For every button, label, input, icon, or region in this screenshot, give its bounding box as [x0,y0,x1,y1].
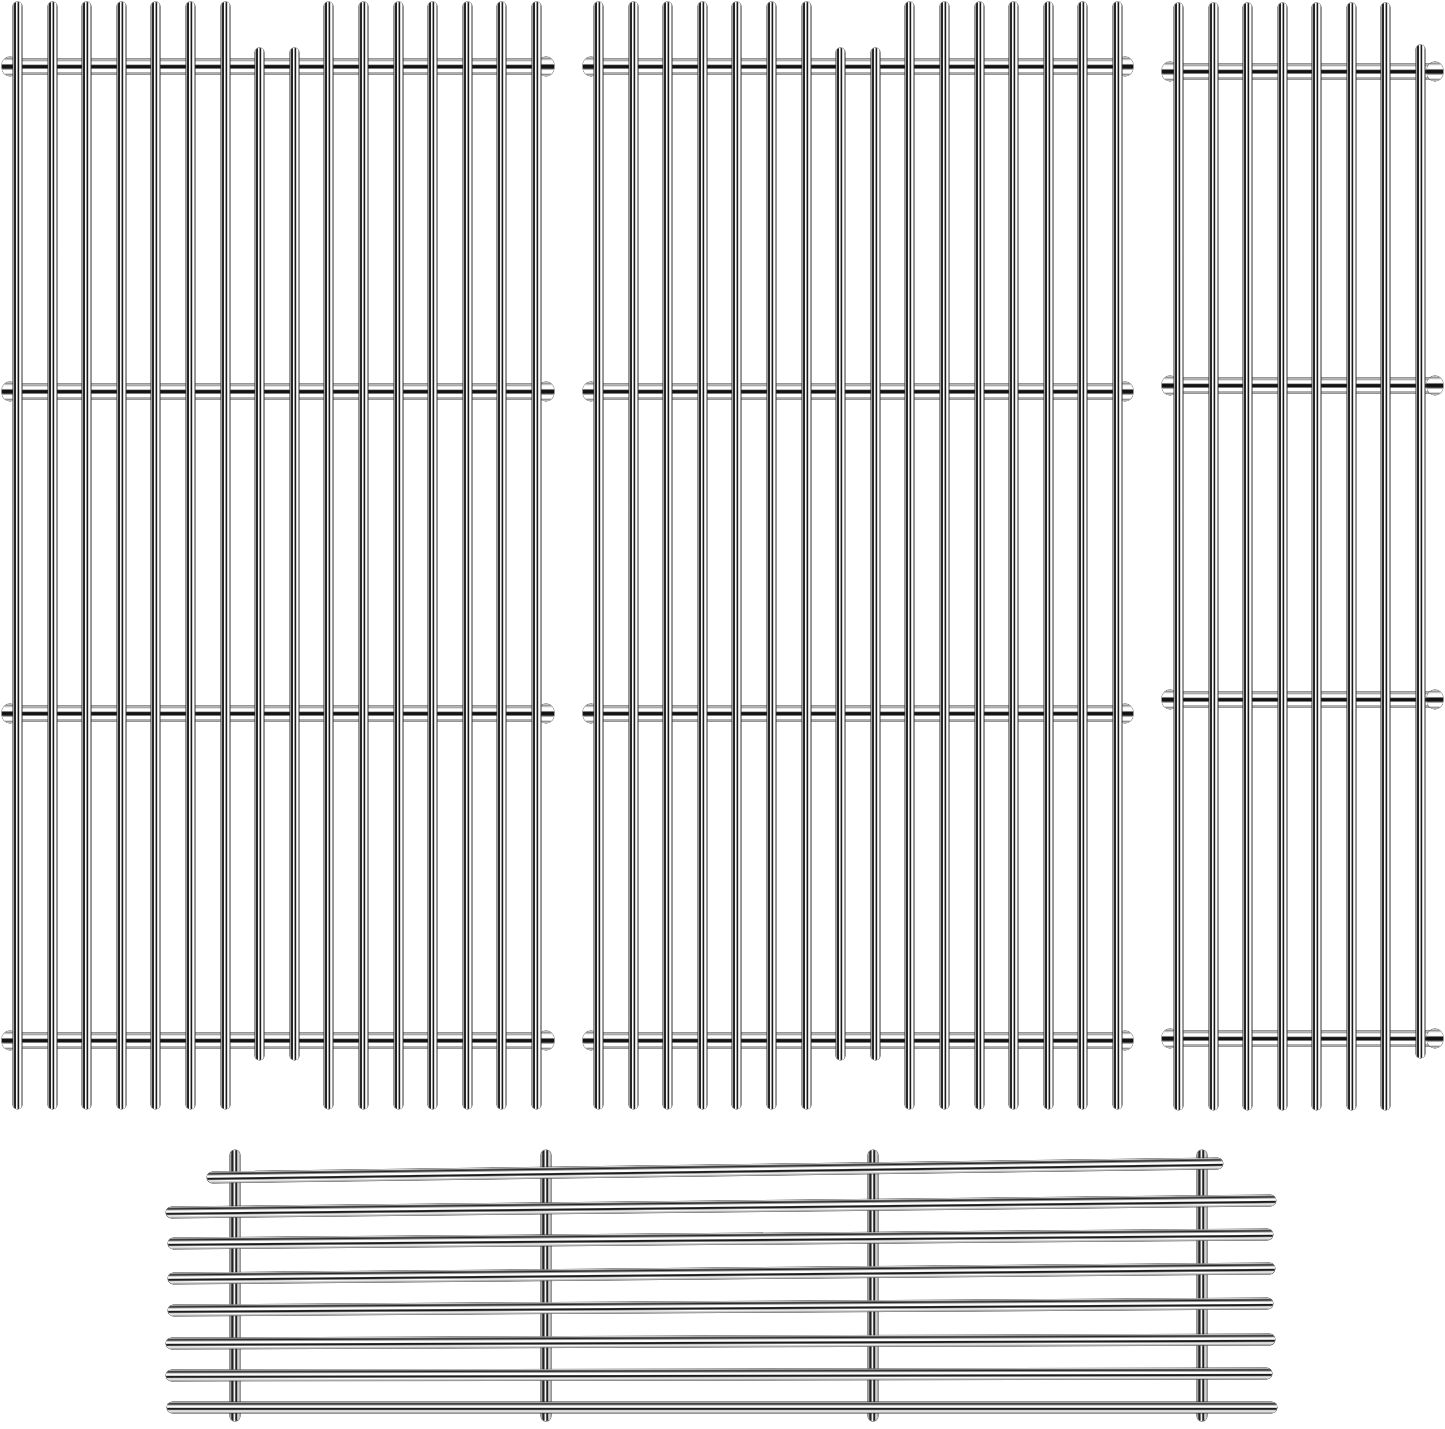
rack-rod [168,1228,1273,1248]
rack-support-rod [541,1150,551,1421]
rack-rod [207,1157,1223,1182]
product-image-canvas [0,0,1445,1429]
rack-support-rod [1197,1150,1207,1421]
rack-rod [167,1402,1277,1413]
warming-rack [0,0,1445,1429]
rack-rod [166,1368,1272,1381]
rack-rod [168,1298,1273,1316]
rack-support-rod [868,1150,878,1421]
rack-rod [168,1262,1275,1283]
rack-rod [166,1333,1275,1348]
rack-rod [166,1194,1276,1217]
